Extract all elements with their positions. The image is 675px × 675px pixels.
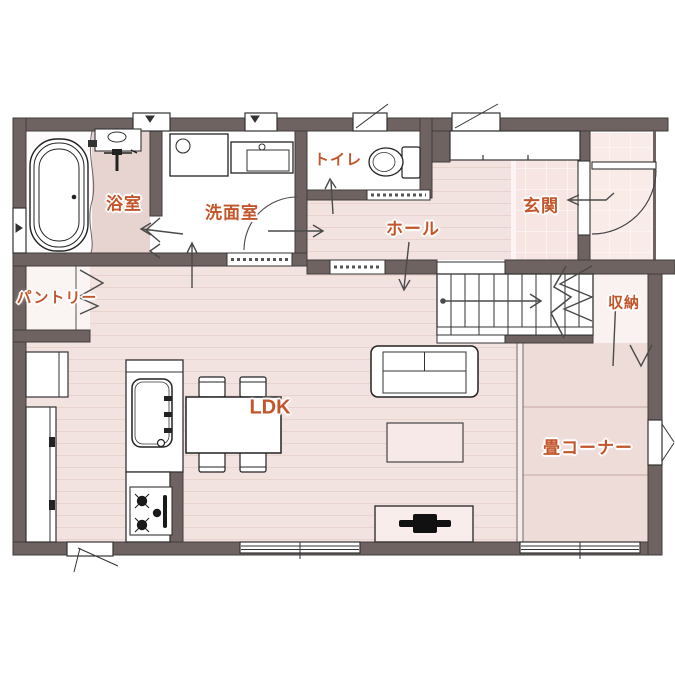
wall-door-jamb-bottom — [578, 235, 590, 260]
label-hall: ホール — [386, 215, 440, 240]
wall-bath-bottom — [13, 253, 227, 266]
shoe-cabinet — [450, 131, 580, 160]
sofa — [371, 346, 478, 397]
chair — [199, 452, 225, 472]
wall-pantry-bottom — [13, 330, 90, 342]
casement-right — [662, 424, 674, 461]
wall-washroom-bottom — [292, 253, 307, 266]
floor-plan-drawing — [0, 0, 675, 675]
label-storage: 収納 — [608, 292, 640, 313]
label-pantry: パントリー — [17, 287, 98, 308]
pantry-shelf — [26, 352, 68, 397]
wall-toilet-bottom — [307, 190, 367, 200]
vanity-sink — [170, 134, 228, 176]
stair-landing-strip — [437, 335, 505, 343]
label-ldk: LDK — [249, 397, 290, 420]
washer-pan — [231, 142, 293, 173]
porch-edge — [653, 131, 656, 260]
label-washroom: 洗面室 — [205, 199, 259, 224]
gas-stove — [130, 487, 172, 535]
entrance-hall-floor — [432, 160, 516, 260]
chair — [240, 377, 266, 397]
tatami-edge — [517, 343, 523, 542]
window-top-2 — [245, 113, 277, 131]
tv-board — [375, 506, 473, 542]
bathtub — [30, 139, 88, 251]
toilet-bowl — [369, 147, 420, 178]
chair — [240, 452, 266, 472]
wall-right — [648, 262, 662, 555]
floor-plan: 浴室 洗面室 トイレ ホール 玄関 パントリー 収納 LDK 畳コーナー — [0, 0, 675, 675]
wall-bath-washroom — [150, 131, 162, 216]
stair-balustrade — [437, 327, 593, 335]
window-top-3 — [353, 113, 387, 131]
genkan-step — [511, 160, 516, 260]
window-left — [13, 208, 26, 253]
coffee-table — [387, 423, 463, 462]
label-toilet: トイレ — [314, 149, 362, 170]
tall-cabinet — [26, 407, 56, 542]
staircase — [437, 266, 593, 343]
kitchen-sink — [132, 379, 172, 447]
wall-toilet-right — [420, 118, 432, 198]
stair-threshold — [437, 262, 505, 274]
label-tatami: 畳コーナー — [543, 434, 633, 459]
wall-hall-bottom-b — [385, 260, 437, 274]
chair — [199, 377, 225, 397]
porch-tile — [590, 133, 653, 260]
window-right — [648, 420, 662, 465]
label-bathroom: 浴室 — [106, 190, 142, 215]
wall-hall-bottom-a — [307, 260, 330, 274]
wall-entrance-stub — [432, 131, 450, 162]
window-top-4 — [452, 113, 500, 131]
label-entrance: 玄関 — [523, 192, 559, 217]
